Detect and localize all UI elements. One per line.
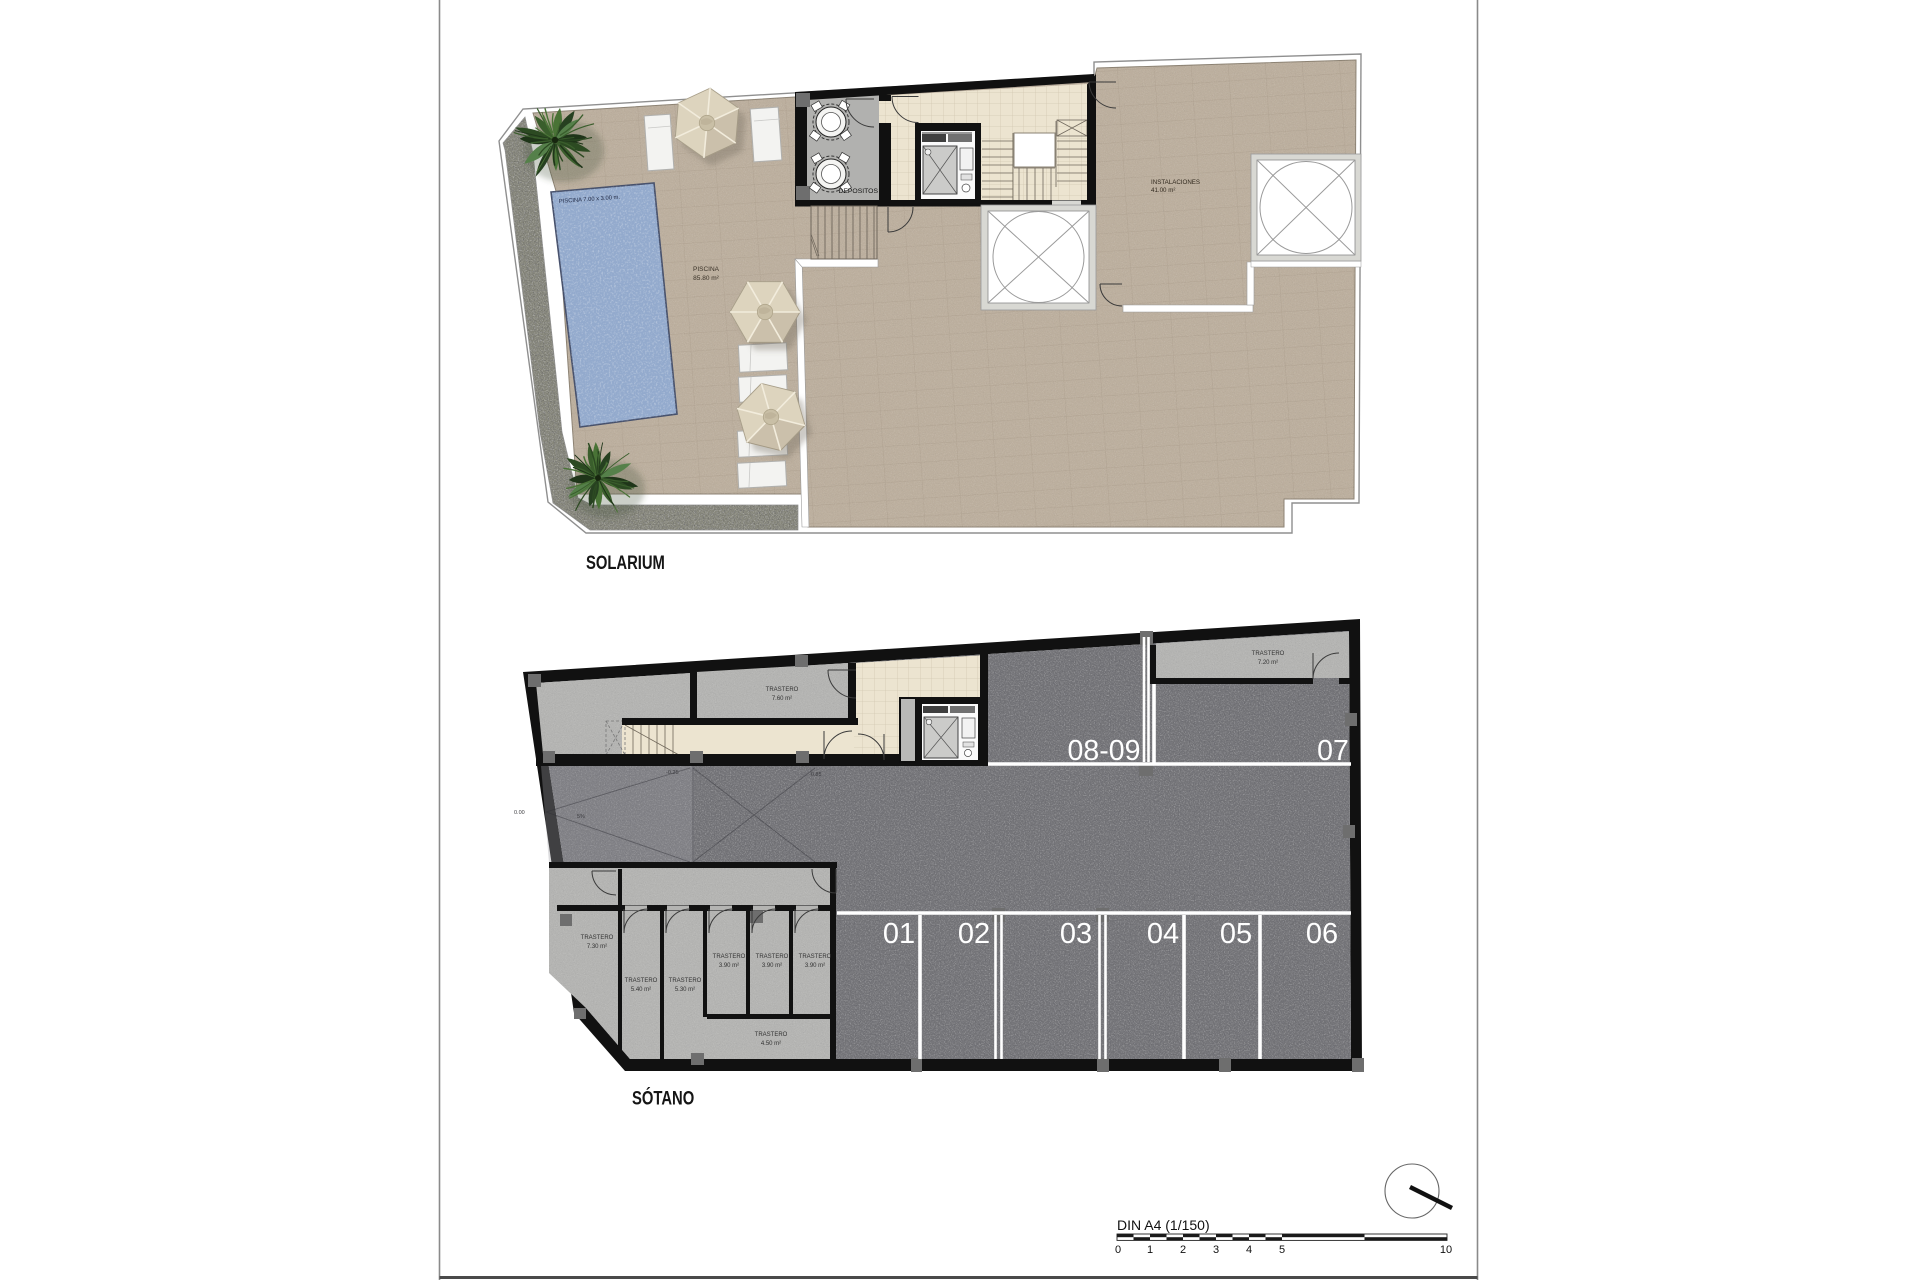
svg-text:TRASTERO: TRASTERO xyxy=(756,954,789,960)
svg-text:7.30 m²: 7.30 m² xyxy=(587,944,607,950)
svg-text:4.50 m²: 4.50 m² xyxy=(761,1041,781,1047)
svg-text:4: 4 xyxy=(1246,1244,1252,1256)
svg-text:06: 06 xyxy=(1306,918,1338,950)
svg-text:TRASTERO: TRASTERO xyxy=(581,935,614,941)
svg-text:5.30 m²: 5.30 m² xyxy=(675,987,695,993)
svg-text:TRASTERO: TRASTERO xyxy=(625,978,658,984)
svg-text:TRASTERO: TRASTERO xyxy=(713,954,746,960)
svg-text:7.20 m²: 7.20 m² xyxy=(1258,660,1278,666)
svg-text:-0.85: -0.85 xyxy=(809,772,822,778)
svg-text:0.00: 0.00 xyxy=(514,810,525,816)
svg-text:DEPOSITOS: DEPOSITOS xyxy=(838,188,878,195)
svg-text:SÓTANO: SÓTANO xyxy=(632,1086,694,1109)
svg-text:05: 05 xyxy=(1220,918,1252,950)
svg-text:PISCINA: PISCINA xyxy=(693,266,720,273)
svg-text:TRASTERO: TRASTERO xyxy=(799,954,832,960)
svg-text:DIN A4 (1/150): DIN A4 (1/150) xyxy=(1117,1217,1210,1233)
svg-text:TRASTERO: TRASTERO xyxy=(755,1032,788,1038)
svg-text:5: 5 xyxy=(1279,1244,1285,1256)
svg-text:85.80 m²: 85.80 m² xyxy=(693,275,719,282)
svg-text:-0.25: -0.25 xyxy=(666,770,679,776)
svg-text:5%: 5% xyxy=(577,814,585,820)
svg-text:03: 03 xyxy=(1060,918,1092,950)
svg-text:7.60 m²: 7.60 m² xyxy=(772,696,792,702)
svg-text:TRASTERO: TRASTERO xyxy=(766,687,799,693)
svg-text:3.90 m²: 3.90 m² xyxy=(719,963,739,969)
svg-text:01: 01 xyxy=(883,918,915,950)
svg-text:3.90 m²: 3.90 m² xyxy=(762,963,782,969)
svg-text:TRASTERO: TRASTERO xyxy=(669,978,702,984)
svg-text:3.90 m²: 3.90 m² xyxy=(805,963,825,969)
svg-text:10: 10 xyxy=(1440,1244,1452,1256)
svg-text:TRASTERO: TRASTERO xyxy=(1252,651,1285,657)
svg-text:INSTALACIONES: INSTALACIONES xyxy=(1151,179,1200,186)
svg-text:1: 1 xyxy=(1147,1244,1153,1256)
svg-text:02: 02 xyxy=(958,918,990,950)
svg-text:08-09: 08-09 xyxy=(1068,735,1141,767)
svg-text:5.40 m²: 5.40 m² xyxy=(631,987,651,993)
svg-text:2: 2 xyxy=(1180,1244,1186,1256)
svg-text:04: 04 xyxy=(1147,918,1179,950)
svg-text:3: 3 xyxy=(1213,1244,1219,1256)
svg-text:SOLARIUM: SOLARIUM xyxy=(586,551,665,574)
svg-text:0: 0 xyxy=(1115,1244,1121,1256)
svg-text:07: 07 xyxy=(1317,735,1349,767)
svg-text:41.00 m²: 41.00 m² xyxy=(1151,187,1175,194)
